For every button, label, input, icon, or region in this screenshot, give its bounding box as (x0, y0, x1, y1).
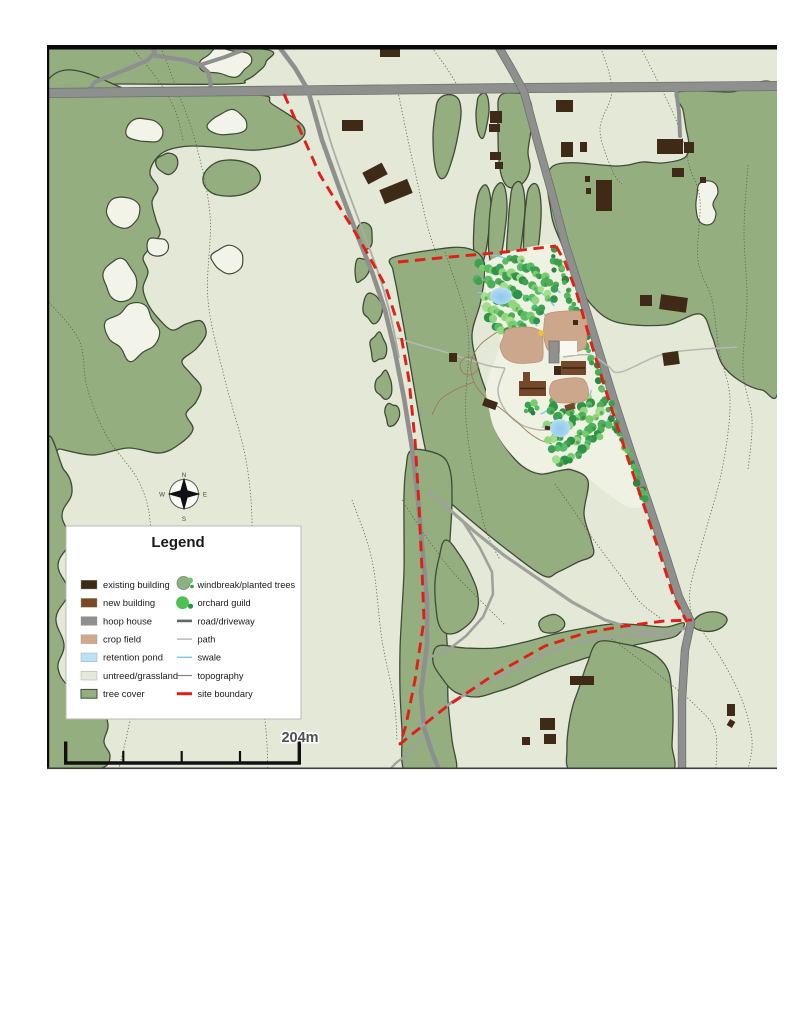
svg-text:site boundary: site boundary (198, 689, 254, 699)
svg-text:windbreak/planted trees: windbreak/planted trees (197, 580, 296, 590)
svg-text:S: S (182, 516, 186, 523)
svg-text:retention pond: retention pond (103, 652, 163, 663)
svg-text:path: path (198, 635, 216, 645)
svg-text:E: E (203, 492, 207, 499)
svg-text:new building: new building (103, 597, 155, 608)
svg-text:204m: 204m (281, 730, 318, 746)
svg-text:W: W (159, 492, 165, 499)
svg-text:N: N (182, 472, 186, 479)
svg-text:orchard guild: orchard guild (198, 598, 251, 608)
svg-text:untreed/grassland: untreed/grassland (103, 670, 178, 681)
svg-text:road/driveway: road/driveway (198, 616, 256, 626)
svg-text:crop field: crop field (103, 634, 141, 645)
svg-text:tree cover: tree cover (103, 688, 145, 699)
svg-text:Legend: Legend (151, 534, 204, 551)
svg-text:existing building: existing building (103, 579, 170, 590)
svg-text:swale: swale (198, 653, 222, 663)
svg-text:topography: topography (198, 671, 244, 681)
svg-text:hoop house: hoop house (103, 615, 152, 626)
